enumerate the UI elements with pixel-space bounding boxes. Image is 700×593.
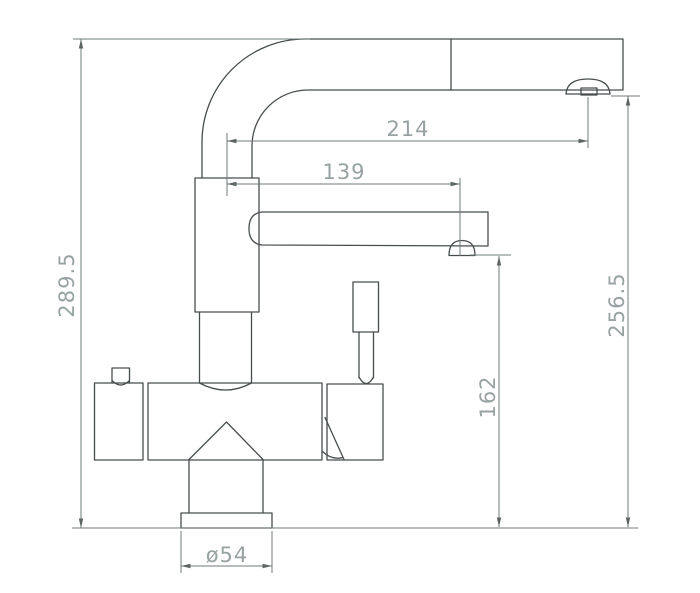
handle-stem — [359, 332, 374, 384]
handle-lever-edge — [323, 418, 345, 460]
neck — [200, 312, 252, 390]
arrow-up-162 — [497, 256, 501, 266]
lower-spout — [249, 212, 488, 246]
lower-spout-aerator — [449, 241, 475, 256]
arrow-up-289-5 — [79, 39, 83, 49]
arrow-left-139 — [227, 182, 237, 186]
dimension-base-diameter: ø54 — [181, 543, 272, 568]
faucet-technical-drawing: 289.5 214 139 256.5 162 — [0, 0, 700, 593]
dim-label-top-spout-reach: 214 — [386, 117, 429, 141]
spout-tube — [202, 39, 623, 178]
dim-label-lower-outlet-height: 162 — [476, 375, 500, 418]
spout-aerator — [566, 79, 610, 94]
faucet-outline — [95, 39, 624, 528]
dimension-lower-spout-reach: 139 — [227, 160, 460, 186]
dim-label-base-diameter: ø54 — [206, 543, 249, 567]
body-left-cap — [95, 383, 144, 460]
extension-lines — [72, 39, 640, 573]
body-main — [148, 383, 322, 460]
dimension-annotations: 289.5 214 139 256.5 162 — [55, 39, 640, 573]
dimension-lower-outlet-height: 162 — [476, 256, 501, 527]
dimension-overall-height: 289.5 — [55, 39, 83, 528]
drawing-canvas: 289.5 214 139 256.5 162 — [0, 0, 700, 593]
arrow-right-54 — [263, 564, 273, 568]
dimension-top-spout-reach: 214 — [227, 117, 588, 143]
handle-knob — [353, 282, 379, 332]
arrow-down-162 — [497, 518, 501, 528]
arrow-left-214 — [227, 139, 237, 143]
base-flange — [181, 513, 272, 528]
base-cone — [189, 422, 263, 460]
arrow-right-214 — [579, 139, 589, 143]
arrow-down-256-5 — [626, 518, 630, 528]
arrow-up-256-5 — [626, 96, 630, 106]
upper-column — [195, 178, 259, 312]
dim-label-top-outlet-height: 256.5 — [605, 272, 629, 337]
arrow-left-54 — [181, 564, 191, 568]
arrow-down-289-5 — [79, 519, 83, 529]
arrow-right-139 — [451, 182, 461, 186]
handle-block — [327, 384, 383, 460]
dimension-top-outlet-height: 256.5 — [605, 96, 630, 527]
dim-label-lower-spout-reach: 139 — [322, 160, 365, 184]
base-column — [189, 460, 263, 513]
dim-label-overall-height: 289.5 — [55, 252, 79, 317]
